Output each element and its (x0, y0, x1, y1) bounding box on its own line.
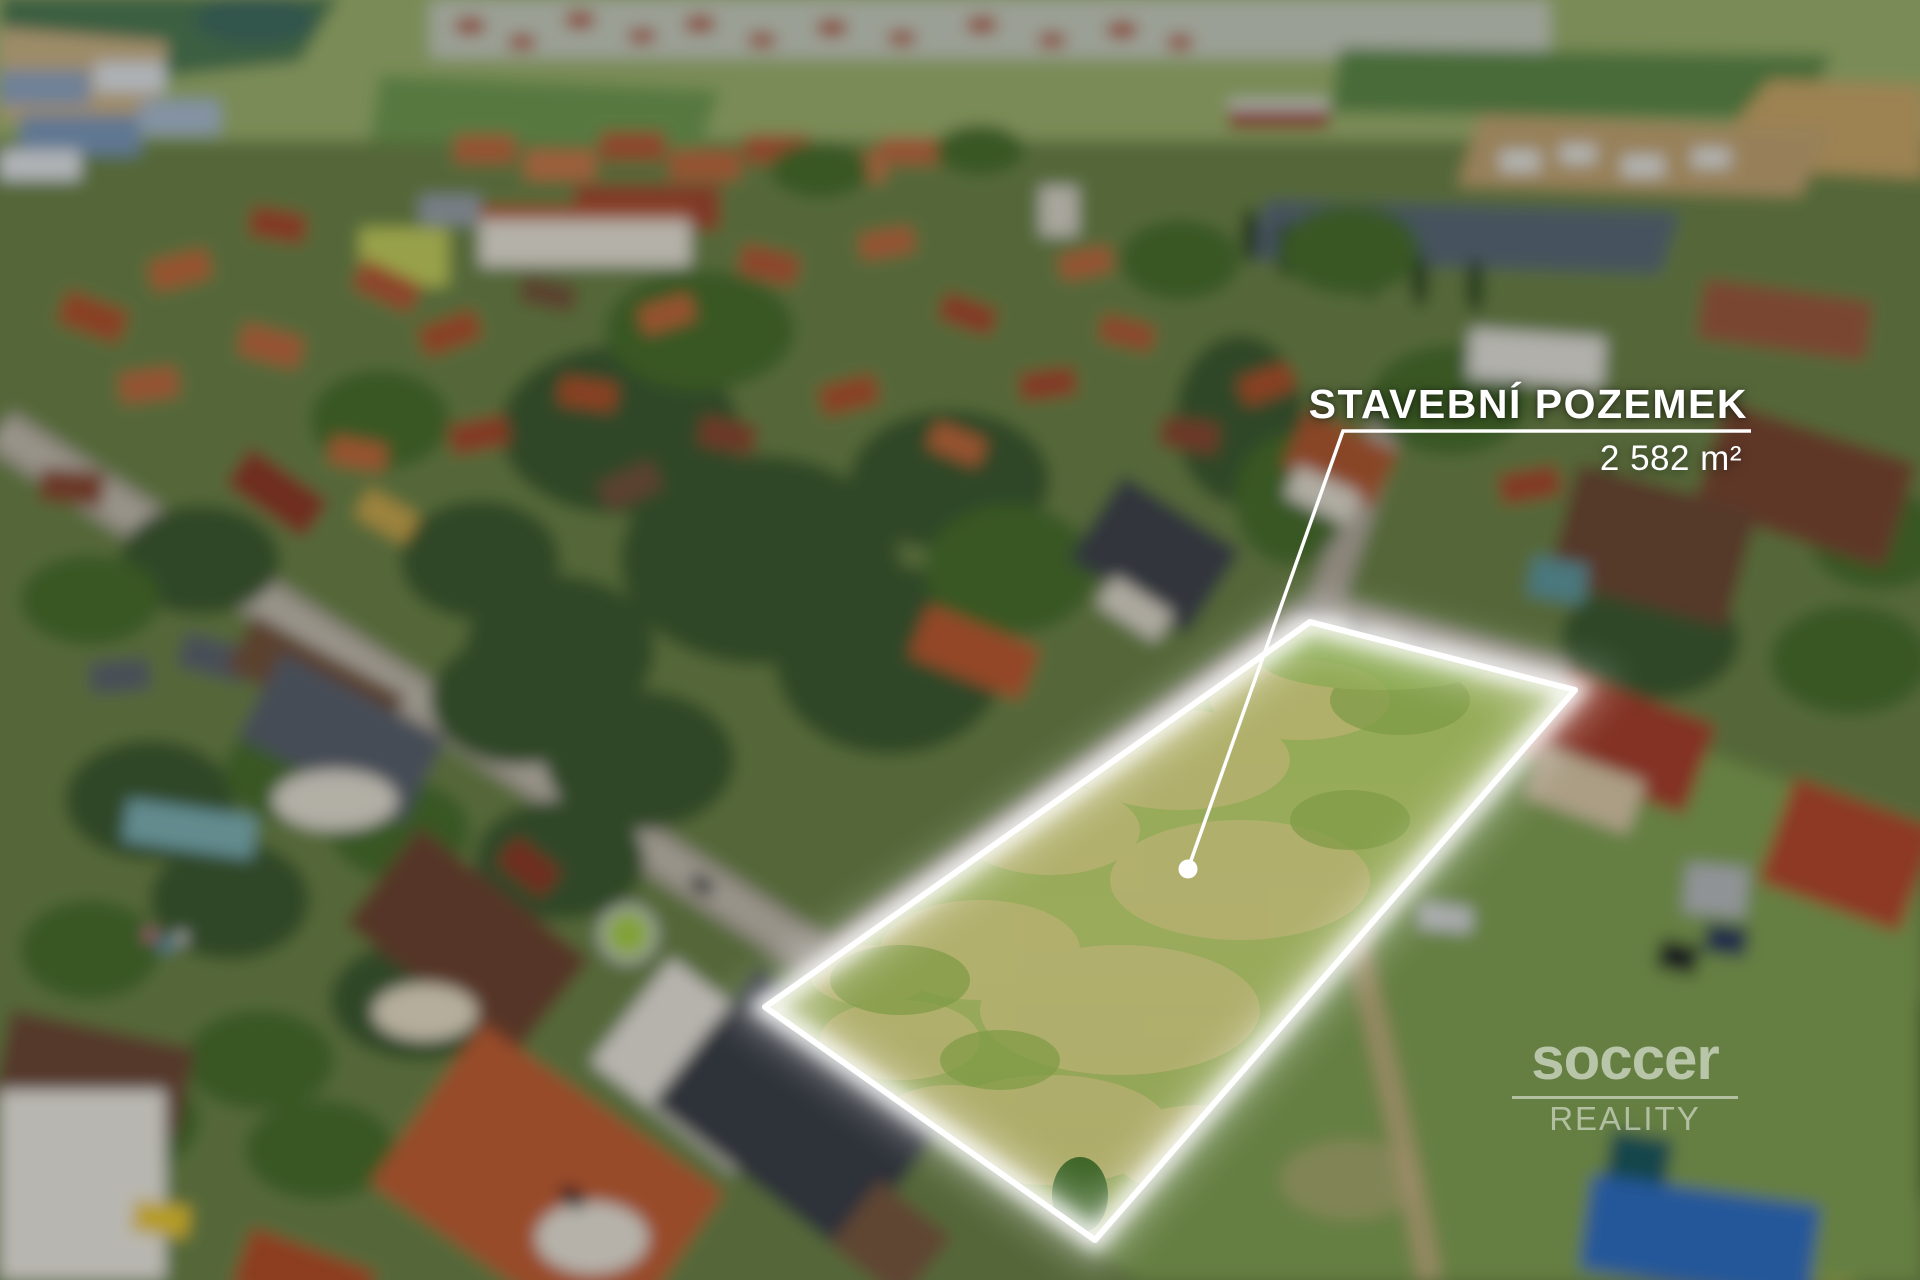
watermark-brand-text: soccer (1531, 1030, 1718, 1088)
plot-area-label: 2 582 m² (1600, 441, 1742, 476)
watermark-divider (1512, 1096, 1738, 1099)
brand-watermark: soccer REALITY (1512, 1030, 1738, 1135)
plot-marker-dot (1179, 860, 1198, 879)
watermark-subtitle-text: REALITY (1549, 1102, 1701, 1135)
plot-title-label: STAVEBNÍ POZEMEK (1309, 384, 1748, 425)
aerial-photo-listing: STAVEBNÍ POZEMEK 2 582 m² soccer REALITY (0, 0, 1920, 1280)
